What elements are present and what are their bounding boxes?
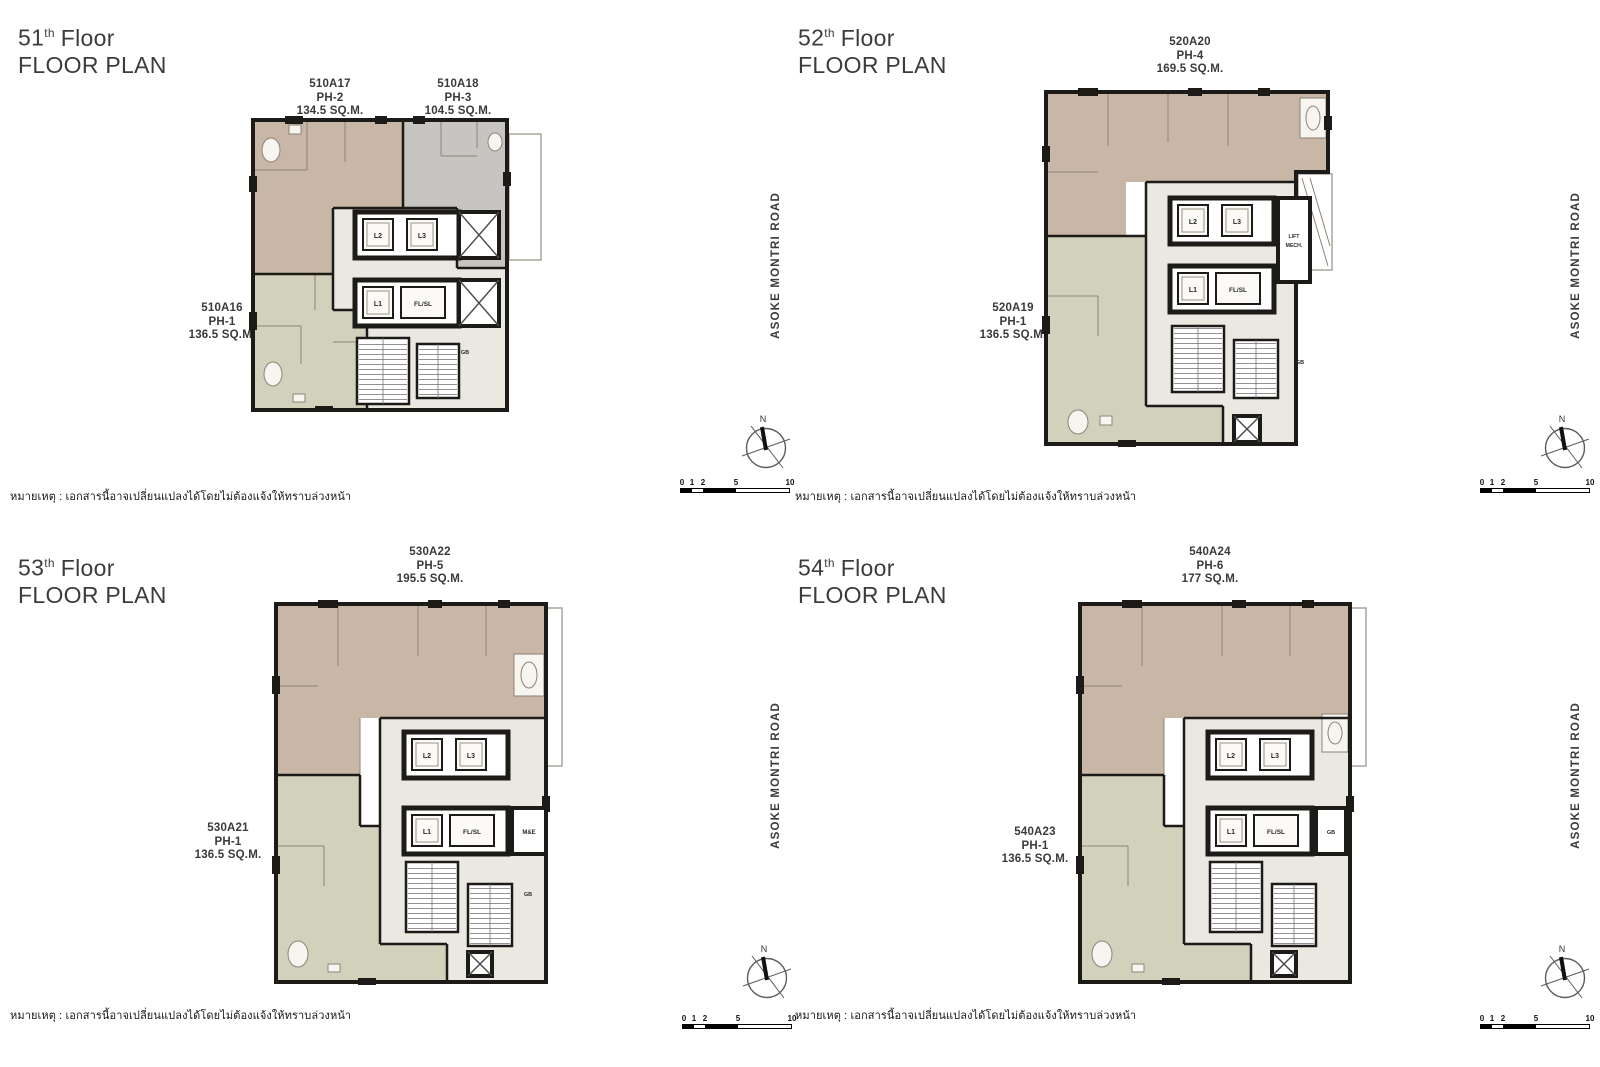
stair-core-1 — [1172, 326, 1224, 392]
floor-54-plan: L2 L3 L1 FL/SL GB — [1072, 596, 1367, 990]
floor-number: 54 — [798, 555, 824, 581]
road-label: ASOKE MONTRI ROAD — [1570, 192, 1582, 339]
service-shaft — [1234, 416, 1260, 442]
scale-bar: 01 25 10 — [682, 1014, 794, 1032]
floor-number: 53 — [18, 555, 44, 581]
floor-subtitle: FLOOR PLAN — [18, 52, 167, 79]
floor-number: 52 — [798, 25, 824, 51]
lift-label-l1: L1 — [1189, 287, 1197, 294]
scale-bar: 01 25 10 — [680, 478, 792, 496]
floor-51-title: 51thFloor FLOOR PLAN — [18, 20, 167, 79]
terrace-outline — [1350, 608, 1366, 766]
gb-label: GB — [461, 350, 469, 356]
disclaimer-note: หมายเหตุ : เอกสารนี้อาจเปลี่ยนแปลงได้โดย… — [795, 487, 1136, 505]
terrace-outline — [546, 608, 562, 766]
floor-53-plan: L2 L3 L1 FL/SL M&E — [268, 596, 563, 990]
floor-53-title: 53thFloor FLOOR PLAN — [18, 550, 167, 609]
stair-core-2 — [417, 344, 459, 398]
floor-word: Floor — [841, 25, 895, 51]
north-label: N — [761, 944, 768, 954]
floor-number: 51 — [18, 25, 44, 51]
quadrant-floor-52: 52thFloor FLOOR PLAN 520A20PH-4169.5 SQ.… — [790, 0, 1600, 530]
floor-51-plan: L2 L3 L1 FL/SL — [245, 112, 545, 412]
compass: N — [741, 942, 793, 1005]
scale-bar: 01 25 10 — [1480, 478, 1592, 496]
quadrant-floor-51: 51thFloor FLOOR PLAN 510A17PH-2134.5 SQ.… — [0, 0, 790, 530]
floor-ordinal: th — [44, 556, 55, 570]
stair-core-1 — [357, 338, 409, 404]
lift-mech-label-2: MECH. — [1286, 243, 1303, 249]
lift-label-l1: L1 — [423, 829, 431, 836]
terrace-outline — [509, 134, 541, 260]
lift-label-l2: L2 — [374, 233, 382, 240]
elevator-bank-upper: L2 L3 — [355, 212, 499, 258]
disclaimer-note: หมายเหตุ : เอกสารนี้อาจเปลี่ยนแปลงได้โดย… — [10, 1006, 351, 1024]
disclaimer-note: หมายเหตุ : เอกสารนี้อาจเปลี่ยนแปลงได้โดย… — [10, 487, 351, 505]
lift-label-l3: L3 — [1271, 753, 1279, 760]
gb-label: GB — [524, 892, 532, 898]
north-label: N — [1559, 944, 1566, 954]
floor-ordinal: th — [44, 26, 55, 40]
north-label: N — [1559, 414, 1566, 424]
elevator-bank-lower: L1 FL/SL — [355, 280, 499, 326]
stair-core-1 — [406, 862, 458, 932]
me-room-label: M&E — [522, 830, 535, 836]
lift-label-l3: L3 — [418, 233, 426, 240]
lift-label-l3: L3 — [467, 753, 475, 760]
lift-label-l3: L3 — [1233, 219, 1241, 226]
service-shaft — [468, 952, 492, 976]
floor-54-title: 54thFloor FLOOR PLAN — [798, 550, 947, 609]
floor-ordinal: th — [824, 26, 835, 40]
floor-ordinal: th — [824, 556, 835, 570]
stair-core-2 — [468, 884, 512, 946]
lift-label-flsl: FL/SL — [1267, 829, 1285, 836]
floor-subtitle: FLOOR PLAN — [798, 52, 947, 79]
stair-core-2 — [1234, 340, 1278, 398]
north-label: N — [760, 414, 767, 424]
lift-label-l1: L1 — [1227, 829, 1235, 836]
lift-label-l2: L2 — [1227, 753, 1235, 760]
unit-label-530A22: 530A22PH-5195.5 SQ.M. — [370, 546, 490, 587]
gb-label: GB — [1327, 830, 1335, 836]
lift-mech-label-1: LIFT — [1289, 234, 1301, 240]
stair-core-2 — [1272, 884, 1316, 946]
road-label: ASOKE MONTRI ROAD — [770, 702, 782, 849]
floor-plan-sheet: 51thFloor FLOOR PLAN 510A17PH-2134.5 SQ.… — [0, 0, 1600, 1067]
unit-label-540A24: 540A24PH-6177 SQ.M. — [1150, 546, 1270, 587]
floor-subtitle: FLOOR PLAN — [798, 582, 947, 609]
quadrant-floor-53: 53thFloor FLOOR PLAN 530A22PH-5195.5 SQ.… — [0, 530, 790, 1067]
floor-52-plan: L2 L3 LIFT MECH. L1 FL/SL — [1038, 86, 1338, 450]
floor-word: Floor — [61, 555, 115, 581]
lift-label-l1: L1 — [374, 301, 382, 308]
floor-word: Floor — [61, 25, 115, 51]
road-label: ASOKE MONTRI ROAD — [770, 192, 782, 339]
compass: N — [740, 412, 792, 475]
disclaimer-note: หมายเหตุ : เอกสารนี้อาจเปลี่ยนแปลงได้โดย… — [795, 1006, 1136, 1024]
lift-label-flsl: FL/SL — [414, 301, 432, 308]
compass: N — [1539, 412, 1591, 475]
lift-label-l2: L2 — [1189, 219, 1197, 226]
elevator-bank-lower: L1 FL/SL M&E — [404, 808, 546, 854]
elevator-bank-upper: L2 L3 — [1208, 732, 1312, 778]
elevator-bank-lower: L1 FL/SL — [1170, 266, 1274, 312]
lift-label-l2: L2 — [423, 753, 431, 760]
lift-label-flsl: FL/SL — [463, 829, 481, 836]
quadrant-floor-54: 54thFloor FLOOR PLAN 540A24PH-6177 SQ.M.… — [790, 530, 1600, 1067]
service-shaft — [1272, 952, 1296, 976]
scale-bar: 01 25 10 — [1480, 1014, 1592, 1032]
unit-label-520A20: 520A20PH-4169.5 SQ.M. — [1130, 36, 1250, 77]
floor-word: Floor — [841, 555, 895, 581]
floor-52-title: 52thFloor FLOOR PLAN — [798, 20, 947, 79]
elevator-bank-lower: L1 FL/SL GB — [1208, 808, 1346, 854]
road-label: ASOKE MONTRI ROAD — [1570, 702, 1582, 849]
stair-core-1 — [1210, 862, 1262, 932]
gb-label: GB — [1296, 360, 1304, 366]
elevator-bank-upper: L2 L3 — [404, 732, 508, 778]
lift-label-flsl: FL/SL — [1229, 287, 1247, 294]
compass: N — [1539, 942, 1591, 1005]
floor-subtitle: FLOOR PLAN — [18, 582, 167, 609]
